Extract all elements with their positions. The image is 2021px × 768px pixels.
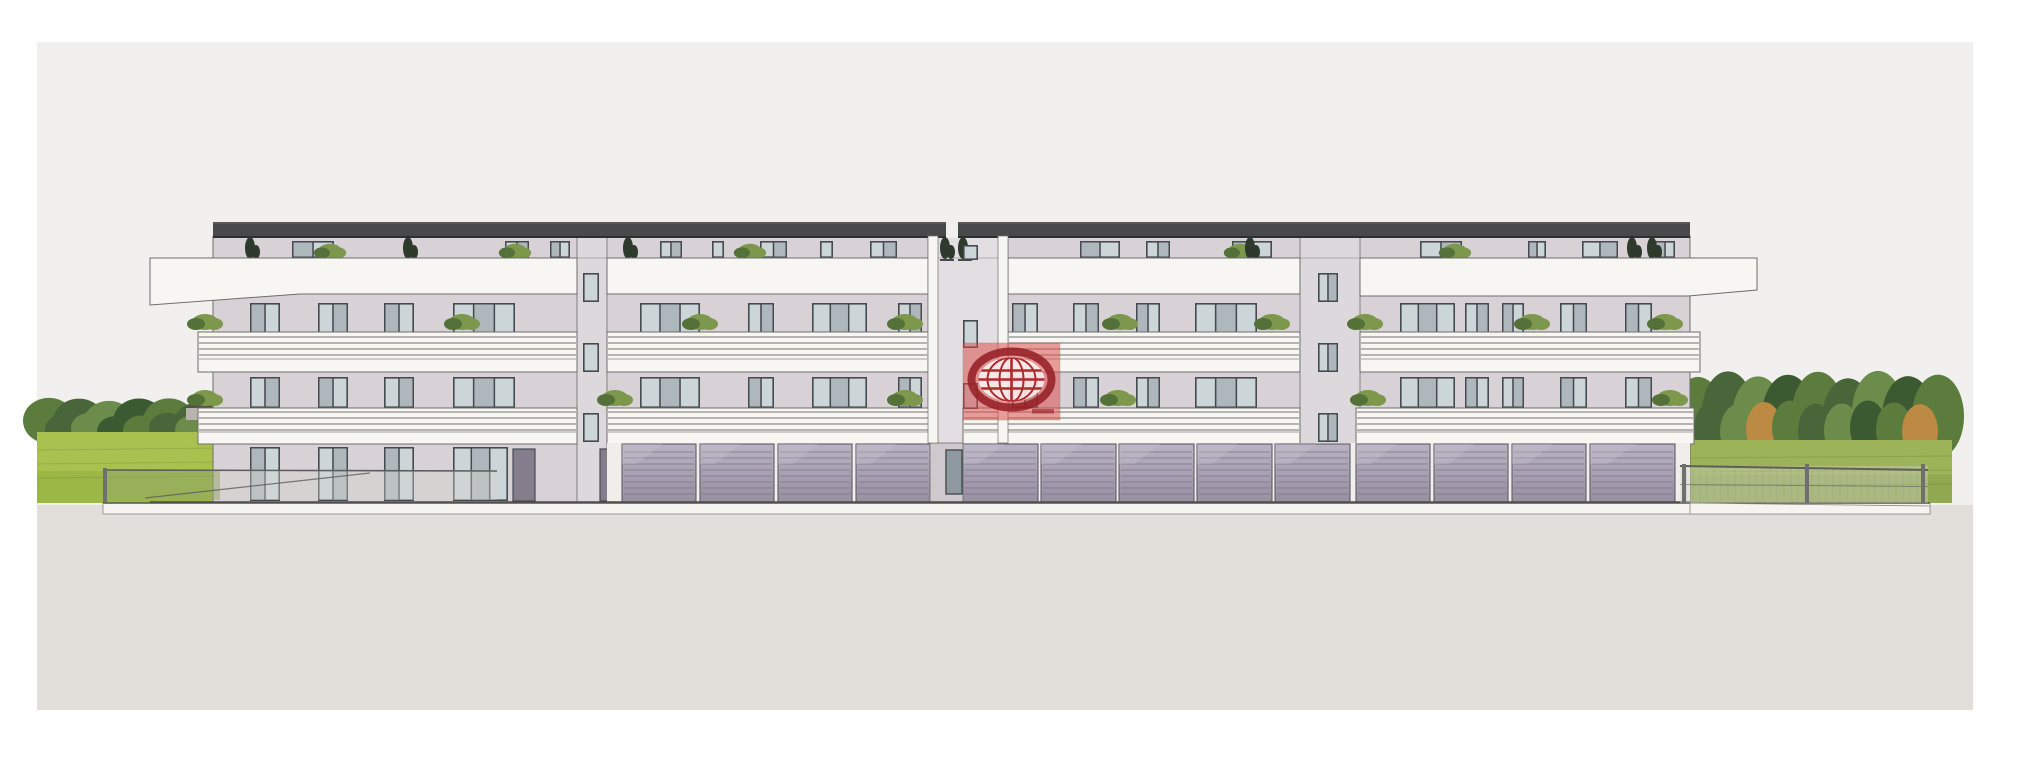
tower-pilaster — [928, 236, 938, 443]
fence-post — [1921, 464, 1925, 503]
window — [1400, 303, 1455, 334]
bush-blob — [1272, 318, 1290, 330]
window-dark-sash — [1217, 379, 1236, 406]
bush-blob — [1665, 318, 1683, 330]
window-dark-sash — [1075, 379, 1085, 406]
garage-door — [622, 444, 696, 502]
bush-blob — [1455, 247, 1471, 258]
bush-blob — [682, 318, 700, 330]
window — [1195, 377, 1257, 408]
plant-foliage — [1252, 245, 1260, 259]
window-glass — [822, 243, 832, 257]
window-dark-sash — [1138, 305, 1147, 332]
garage-door — [1590, 444, 1675, 502]
bush-blob — [187, 394, 205, 406]
window — [1318, 273, 1338, 302]
bush-blob — [615, 394, 633, 406]
ground-plane — [37, 505, 1973, 710]
window — [1625, 303, 1652, 334]
window — [1195, 303, 1257, 334]
bush-blob — [1365, 318, 1383, 330]
garage-door — [1041, 444, 1116, 502]
window — [250, 377, 280, 408]
window-dark-sash — [750, 379, 760, 406]
window — [1625, 377, 1652, 408]
bush-blob — [205, 394, 223, 406]
bush-blob — [905, 318, 923, 330]
window — [384, 303, 414, 334]
window — [1073, 303, 1099, 334]
window-dark-sash — [1530, 243, 1536, 256]
window-dark-sash — [1329, 345, 1336, 370]
garage-door — [778, 444, 852, 502]
window-dark-sash — [762, 305, 772, 332]
window-dark-sash — [266, 379, 278, 406]
window — [1146, 241, 1170, 258]
window-glass — [585, 345, 598, 371]
plant-foliage — [410, 245, 418, 259]
window — [812, 377, 867, 408]
window-dark-sash — [1419, 379, 1435, 406]
balcony-band-segment — [198, 332, 577, 372]
bush-blob — [887, 394, 905, 406]
bush-blob — [1439, 247, 1455, 258]
plant-foliage — [630, 245, 638, 259]
window — [1400, 377, 1455, 408]
window-dark-sash — [885, 243, 896, 256]
building — [150, 221, 1757, 503]
garage-door — [1119, 444, 1194, 502]
bush-blob — [314, 247, 330, 258]
window — [1318, 413, 1338, 442]
perimeter-fence-left — [103, 468, 497, 502]
window-dark-sash — [831, 379, 847, 406]
garage-door — [963, 444, 1038, 502]
window-dark-sash — [294, 243, 312, 256]
plant-foliage — [1654, 245, 1662, 259]
window — [820, 241, 833, 258]
window — [1080, 241, 1120, 258]
bush-blob — [1118, 394, 1136, 406]
window — [1560, 303, 1587, 334]
window-dark-sash — [1640, 379, 1651, 406]
window-dark-sash — [1419, 305, 1435, 332]
balcony-band-segment — [1356, 408, 1694, 444]
window-dark-sash — [661, 305, 679, 332]
plinth-strip — [103, 503, 1930, 514]
window — [318, 377, 348, 408]
window-dark-sash — [661, 379, 679, 406]
window — [1465, 377, 1489, 408]
window-dark-sash — [475, 379, 494, 406]
window-dark-sash — [1014, 305, 1024, 332]
bush-blob — [597, 394, 615, 406]
bush-blob — [515, 247, 531, 258]
window-dark-sash — [1575, 305, 1586, 332]
bush-blob — [750, 247, 766, 258]
fence-top-rail — [105, 470, 497, 471]
bush-blob — [1254, 318, 1272, 330]
entrance-door-glass — [946, 450, 962, 494]
window-dark-sash — [386, 305, 398, 332]
garage-zone — [607, 443, 1690, 503]
roof-slab — [213, 221, 1690, 238]
bush-blob — [444, 318, 462, 330]
balcony-band-segment — [1360, 332, 1700, 372]
window — [870, 241, 897, 258]
window-dark-sash — [320, 379, 332, 406]
plant-foliage — [947, 245, 955, 259]
window — [583, 273, 599, 302]
window — [640, 377, 700, 408]
window-dark-sash — [252, 305, 264, 332]
base-plinth — [103, 503, 1930, 514]
window-dark-sash — [1627, 305, 1638, 332]
fence-post — [103, 468, 107, 502]
window-dark-sash — [672, 243, 680, 256]
window — [384, 377, 414, 408]
plant-foliage — [252, 245, 260, 259]
bush-blob — [187, 318, 205, 330]
window — [1073, 377, 1099, 408]
roof-gap — [946, 221, 958, 238]
window-dark-sash — [831, 305, 847, 332]
window-dark-sash — [1082, 243, 1099, 256]
bush-blob — [1347, 318, 1365, 330]
balcony-band-segment — [607, 332, 928, 372]
entry-door — [513, 449, 535, 501]
bush-blob — [1224, 247, 1240, 258]
window — [1502, 377, 1524, 408]
window — [318, 303, 348, 334]
fascia-segment — [1360, 258, 1757, 296]
fascia-segment — [1008, 258, 1300, 294]
window-dark-sash — [400, 379, 412, 406]
fence-post — [1805, 464, 1809, 503]
window-dark-sash — [1514, 379, 1522, 406]
window-dark-sash — [1601, 243, 1616, 256]
window — [1136, 303, 1160, 334]
scanned-rendering — [0, 0, 2021, 768]
window — [583, 343, 599, 372]
window-dark-sash — [1159, 243, 1168, 256]
bush-blob — [734, 247, 750, 258]
window — [1318, 343, 1338, 372]
garage-door — [1197, 444, 1272, 502]
plant-foliage — [1634, 245, 1642, 259]
bush-blob — [1514, 318, 1532, 330]
window — [1136, 377, 1160, 408]
window-glass — [585, 275, 598, 301]
window-dark-sash — [1467, 379, 1476, 406]
window — [1465, 303, 1489, 334]
window — [1528, 241, 1546, 258]
fence-post — [1682, 464, 1686, 503]
bush-blob — [205, 318, 223, 330]
garage-door — [856, 444, 930, 502]
window-glass — [965, 247, 977, 259]
garage-door — [1434, 444, 1508, 502]
window — [748, 377, 774, 408]
bush-blob — [1102, 318, 1120, 330]
bush-blob — [700, 318, 718, 330]
garage-door — [1512, 444, 1586, 502]
watermark-logo — [963, 343, 1060, 420]
bush-blob — [1120, 318, 1138, 330]
window — [812, 303, 867, 334]
window-dark-sash — [1478, 305, 1487, 332]
window-dark-sash — [334, 305, 346, 332]
window-dark-sash — [1087, 305, 1097, 332]
garage-door — [700, 444, 774, 502]
window-dark-sash — [1504, 305, 1512, 332]
bush-blob — [462, 318, 480, 330]
bush-blob — [1647, 318, 1665, 330]
window — [660, 241, 682, 258]
window — [583, 413, 599, 442]
fascia-segment — [607, 258, 928, 294]
garage-door — [1275, 444, 1350, 502]
garage-door — [1356, 444, 1430, 502]
window-dark-sash — [1149, 379, 1158, 406]
bush-blob — [887, 318, 905, 330]
window — [748, 303, 774, 334]
window — [550, 241, 570, 258]
window-dark-sash — [1329, 415, 1336, 440]
window — [963, 245, 978, 260]
elevation-svg — [0, 0, 2021, 768]
window-dark-sash — [552, 243, 559, 256]
balcony-band-segment — [198, 408, 577, 444]
bush-blob — [1368, 394, 1386, 406]
window — [1012, 303, 1038, 334]
window-glass — [714, 243, 723, 257]
bush-blob — [1652, 394, 1670, 406]
window-dark-sash — [1217, 305, 1236, 332]
window — [453, 377, 515, 408]
window — [1582, 241, 1618, 258]
bush-blob — [1100, 394, 1118, 406]
window — [1560, 377, 1587, 408]
window-dark-sash — [1562, 379, 1573, 406]
balcony-band-segment — [607, 408, 930, 444]
bush-blob — [1532, 318, 1550, 330]
bush-blob — [905, 394, 923, 406]
window — [712, 241, 724, 258]
window-dark-sash — [775, 243, 786, 256]
logo-text-smudge — [1032, 409, 1054, 414]
window — [250, 303, 280, 334]
bush-blob — [499, 247, 515, 258]
window-dark-sash — [1329, 275, 1336, 300]
bush-blob — [330, 247, 346, 258]
perimeter-fence-right — [1680, 464, 1928, 503]
bush-blob — [1670, 394, 1688, 406]
bush-blob — [1350, 394, 1368, 406]
window-glass — [585, 415, 598, 441]
